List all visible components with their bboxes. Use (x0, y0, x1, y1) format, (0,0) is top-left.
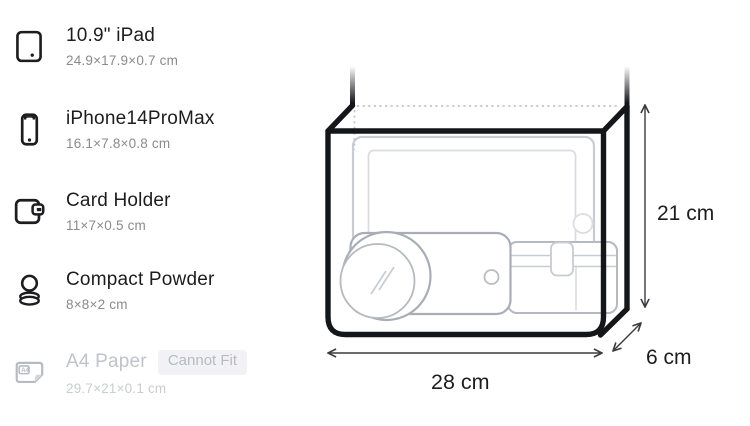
list-item: iPhone14ProMax 16.1×7.8×0.8 cm (12, 108, 215, 151)
height-dimension: 21 cm (645, 105, 714, 307)
width-label: 28 cm (431, 370, 490, 394)
cannot-fit-badge: Cannot Fit (158, 350, 247, 375)
depth-dimension: 6 cm (613, 323, 692, 369)
item-title: Compact Powder (66, 269, 215, 291)
card-holder-outline (508, 242, 617, 313)
a4-icon-label: A4 (21, 367, 29, 374)
item-title: 10.9" iPad (66, 25, 155, 47)
tablet-icon (12, 29, 46, 64)
item-title: iPhone14ProMax (66, 108, 215, 130)
wallet-icon (12, 197, 46, 226)
width-dimension: 28 cm (328, 353, 602, 394)
fit-diagram: 21 cm 28 cm 6 cm (315, 50, 750, 426)
item-dimensions: 16.1×7.8×0.8 cm (66, 136, 215, 151)
item-title: A4 Paper (66, 351, 147, 373)
list-item: Compact Powder 8×8×2 cm (12, 269, 215, 312)
item-dimensions: 24.9×17.9×0.7 cm (66, 53, 178, 68)
list-item: A4 A4 Paper Cannot Fit 29.7×21×0.1 cm (12, 350, 247, 396)
list-item: Card Holder 11×7×0.5 cm (12, 190, 171, 233)
compact-powder-icon (12, 274, 46, 307)
height-label: 21 cm (657, 202, 714, 225)
bag-top-left-edge (328, 106, 353, 132)
item-title: Card Holder (66, 190, 171, 212)
item-dimensions: 29.7×21×0.1 cm (66, 381, 247, 396)
item-dimensions: 8×8×2 cm (66, 297, 215, 312)
compact-powder-outline (341, 232, 431, 320)
depth-label: 6 cm (646, 346, 692, 369)
a4-paper-icon: A4 (12, 358, 46, 387)
bag-top-right-edge (604, 107, 628, 132)
phone-icon (12, 112, 46, 147)
capacity-infographic: 10.9" iPad 24.9×17.9×0.7 cm iPhone14ProM… (0, 0, 750, 426)
item-dimensions: 11×7×0.5 cm (66, 218, 171, 233)
list-item: 10.9" iPad 24.9×17.9×0.7 cm (12, 25, 178, 68)
